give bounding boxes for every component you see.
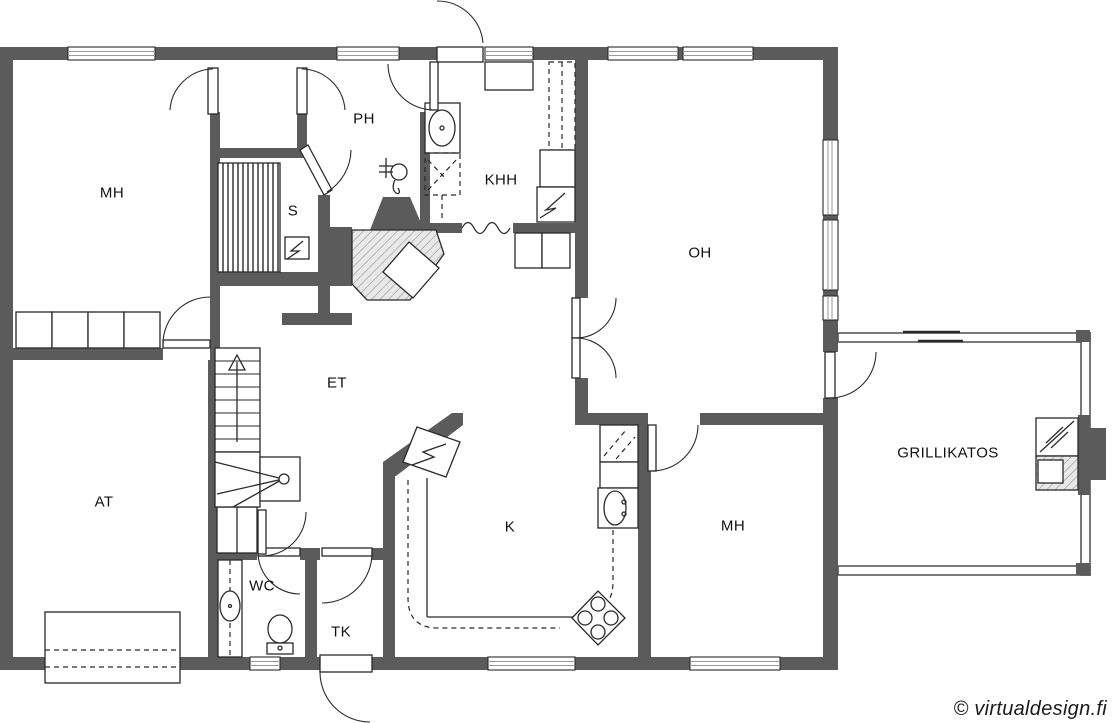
door-et-mh1-swing (163, 297, 210, 344)
kitchen-sink (604, 491, 626, 525)
grill-hearth-inset (1038, 460, 1063, 483)
at-wardrobe-2 (52, 312, 88, 348)
wall (318, 284, 330, 315)
double-door-oh-bottom-leaf (572, 338, 580, 378)
wall (823, 290, 838, 296)
wall (300, 548, 320, 560)
khh-counter (485, 62, 533, 90)
at-wardrobe-1 (16, 312, 52, 348)
wall (823, 398, 838, 670)
window-kitchen (488, 657, 575, 670)
door-tk-swing (322, 553, 372, 603)
wall (180, 657, 250, 670)
entry-door-top-swing (437, 1, 483, 43)
door-ph-leaf (297, 68, 307, 114)
khh-curtain-wave (462, 223, 510, 234)
wall (330, 227, 352, 286)
room-label-wc: WC (249, 578, 275, 595)
wall (575, 413, 648, 425)
stairs-winder (215, 452, 260, 507)
upper-cabinets-left (408, 480, 560, 628)
wall (700, 413, 823, 425)
window-oh-right-3 (823, 296, 838, 320)
door-hall-closet-leaf (258, 510, 266, 554)
wall (823, 47, 838, 140)
kitchen-cabinet-b (600, 462, 638, 488)
wall (155, 47, 337, 60)
door-ph-swing (302, 69, 345, 110)
grillikatos-rail-bottom (838, 566, 1090, 575)
door-mh1-swing (170, 69, 213, 110)
wall (217, 272, 332, 286)
room-label-oh: OH (688, 245, 711, 262)
at-wardrobe-4 (124, 312, 160, 348)
door-oh-mh2-swing (652, 425, 698, 471)
kitchen-top-cabinet-2 (542, 233, 570, 268)
shower-mixer-icon (391, 164, 407, 180)
door-ph-inner-leaf (430, 62, 438, 110)
wall (372, 548, 395, 560)
stove (572, 591, 625, 645)
window-khh (485, 47, 533, 60)
floor-plan-svg (0, 0, 1112, 723)
wall (372, 657, 488, 670)
window-ph (337, 47, 399, 60)
room-label-grillikatos: GRILLIKATOS (897, 445, 998, 462)
floor-plan: MH PH S KHH OH ET AT K MH WC TK GRILLIKA… (0, 0, 1112, 723)
room-label-at: AT (95, 494, 114, 511)
kitchen-top-cabinet-1 (515, 233, 542, 268)
double-door-oh-top-swing (576, 298, 616, 338)
wall (513, 223, 575, 233)
toilet-tank (267, 643, 293, 654)
wall (575, 60, 588, 298)
window-mh1 (68, 47, 155, 60)
wall (383, 470, 395, 657)
window-oh-right-1 (823, 140, 838, 215)
khh-cabinet (540, 150, 575, 187)
window-mh2 (690, 657, 780, 670)
wall (282, 313, 352, 325)
grill-chimney (1090, 428, 1106, 480)
wall (13, 348, 163, 360)
wall (217, 148, 300, 158)
door-tk-exterior-leaf (320, 655, 372, 672)
door-oh-grillikatos-swing (830, 352, 876, 398)
fireplace-flue (370, 197, 424, 230)
wall (823, 320, 838, 352)
door-et-mh1-leaf (163, 340, 210, 348)
room-label-ph: PH (353, 111, 375, 128)
khh-cabinet-diag-2 (428, 160, 445, 178)
room-label-mh2: MH (721, 518, 745, 535)
grillikatos-rail-top (838, 333, 1090, 342)
door-oh-mh2-leaf (648, 425, 656, 471)
window-oh-1 (608, 47, 678, 60)
wall (823, 215, 838, 220)
grillikatos-post-ne (1076, 330, 1090, 342)
wall (533, 47, 608, 60)
wall (399, 47, 437, 60)
door-tk-exterior-swing (320, 672, 370, 722)
entry-door-top-leaf (437, 47, 483, 62)
kitchen-corner-appliance (403, 427, 460, 477)
door-oh-grillikatos-leaf (825, 352, 835, 398)
door-sauna-swing (327, 150, 351, 192)
at-wardrobe-3 (88, 312, 124, 348)
stairs-newel (279, 474, 289, 484)
grillikatos-post-mid (1078, 415, 1090, 495)
door-mh1-leaf (208, 68, 218, 114)
room-label-mh1: MH (100, 185, 124, 202)
grillikatos-post-se (1076, 563, 1090, 575)
window-oh-right-2 (823, 220, 838, 290)
wall (575, 657, 690, 670)
window-wc (250, 657, 280, 670)
watermark: © virtualdesign.fi (953, 698, 1107, 721)
wall (280, 657, 320, 670)
room-label-et: ET (327, 375, 347, 392)
garage-door (45, 612, 180, 683)
double-door-oh-bottom-swing (576, 338, 616, 378)
room-label-khh: KHH (485, 172, 518, 189)
shower-hose-icon (393, 180, 399, 194)
kitchen-cabinet-a (600, 425, 638, 462)
wall (0, 47, 13, 670)
door-sauna-leaf (300, 145, 332, 195)
sauna-heater (285, 237, 309, 259)
room-label-k: K (505, 519, 515, 536)
wall (305, 548, 317, 657)
wall (318, 195, 330, 285)
washing-machine-drum (429, 110, 455, 146)
wall (0, 657, 46, 670)
khh-cabinet-diag-1 (428, 158, 458, 190)
double-door-oh-top-leaf (572, 298, 580, 338)
room-label-s: S (288, 203, 298, 220)
wall (678, 47, 683, 60)
door-tk-leaf (322, 548, 372, 556)
room-label-tk: TK (331, 624, 351, 641)
toilet-bowl (268, 615, 292, 643)
window-oh-2 (683, 47, 753, 60)
wc-basin (220, 591, 240, 621)
